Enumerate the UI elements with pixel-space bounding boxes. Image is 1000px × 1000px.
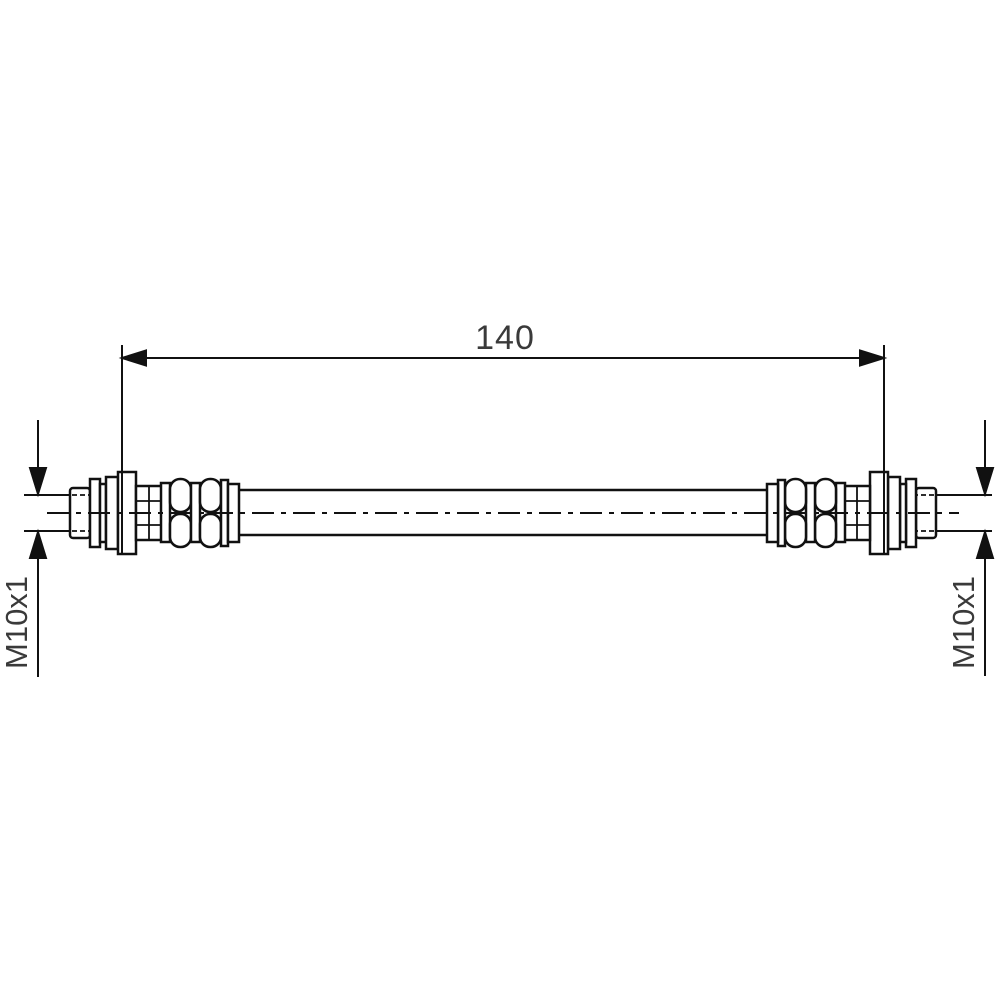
brake-hose-technical-drawing: 140 M10x1 M10x1 <box>0 0 1000 1000</box>
corrugation-rib <box>191 483 200 542</box>
arrowhead-down-icon <box>30 468 46 494</box>
corrugation-lobe <box>200 514 221 547</box>
arrowhead-up-icon <box>30 532 46 558</box>
arrowhead-down-icon <box>977 468 993 494</box>
arrowhead-up-icon <box>977 532 993 558</box>
corrugation-lobe <box>170 514 191 547</box>
dimension-value-label: 140 <box>475 319 535 357</box>
arrowhead-right-icon <box>860 351 884 366</box>
corrugation-lobe <box>170 479 191 512</box>
drawing-canvas: 140 M10x1 M10x1 <box>0 0 1000 1000</box>
thread-size-label-left: M10x1 <box>0 576 34 669</box>
corrugation-lobe <box>200 479 221 512</box>
thread-size-label-right: M10x1 <box>946 576 981 669</box>
arrowhead-left-icon <box>122 351 146 366</box>
